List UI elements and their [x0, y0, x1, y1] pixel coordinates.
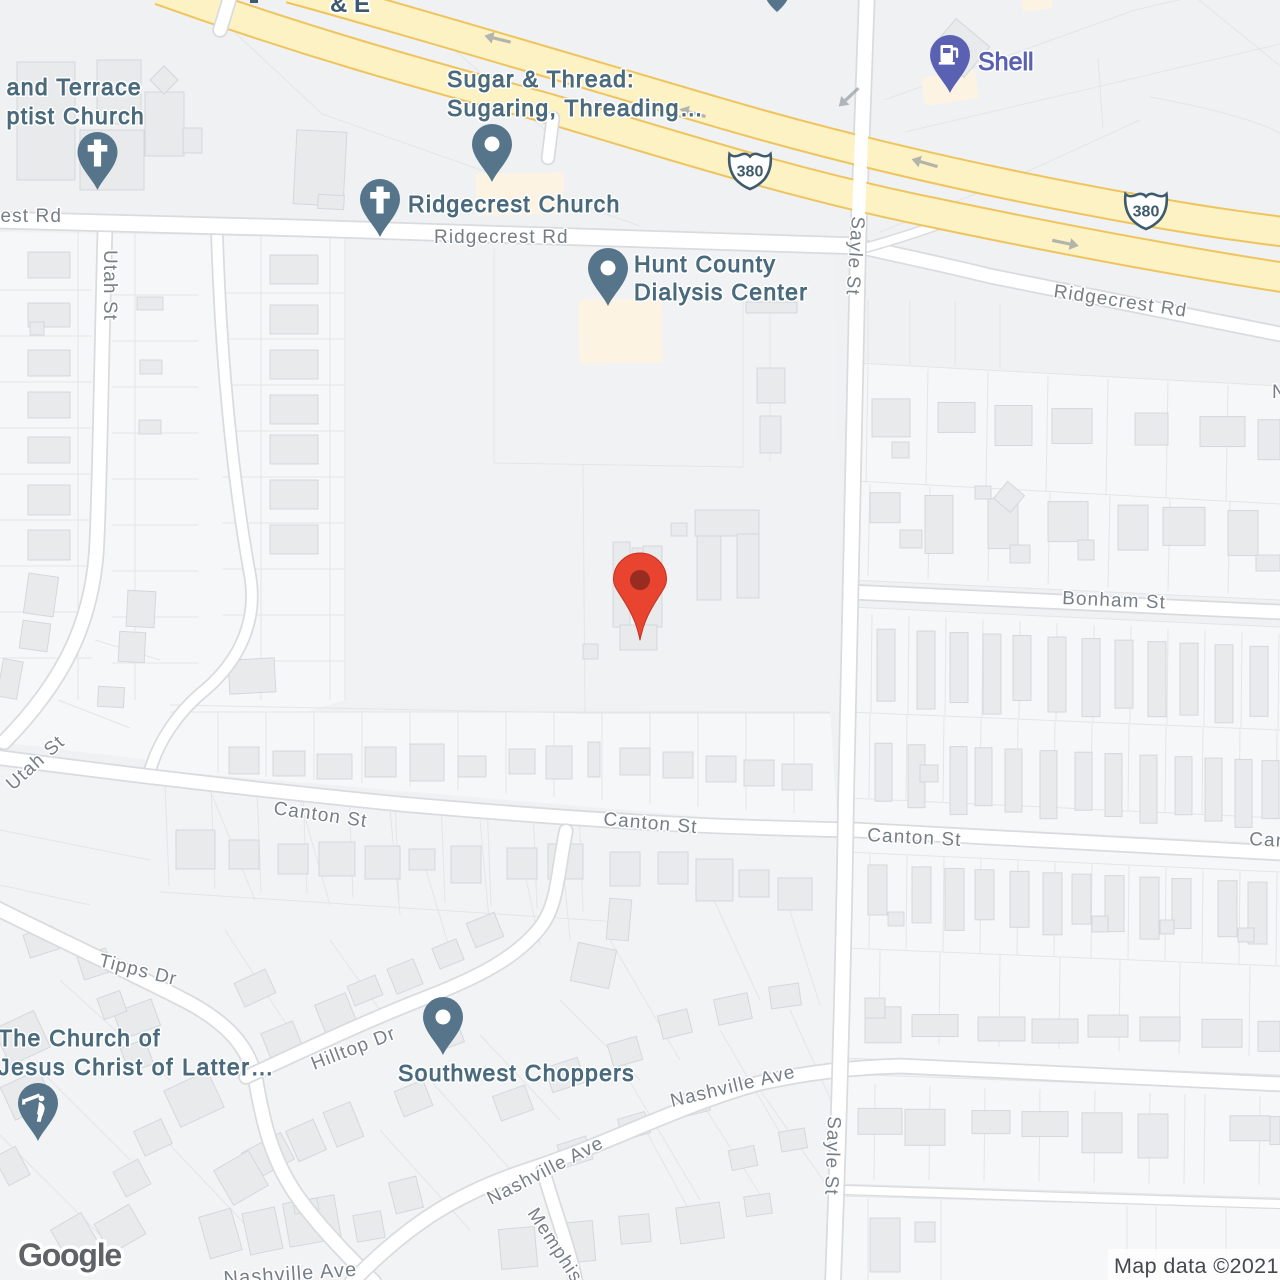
svg-text:Jesus Christ of Latter…: Jesus Christ of Latter…: [0, 1054, 275, 1080]
svg-text:The Church of: The Church of: [0, 1025, 161, 1051]
svg-text:ptist Church: ptist Church: [7, 103, 145, 129]
svg-text:and Terrace: and Terrace: [7, 74, 142, 100]
svg-text:Google: Google: [18, 1237, 121, 1273]
svg-text:& E: & E: [330, 0, 370, 18]
svg-text:380: 380: [737, 164, 764, 181]
svg-text:Dialysis Center: Dialysis Center: [634, 279, 808, 305]
svg-text:crest Rd: crest Rd: [0, 206, 62, 227]
svg-text:Sugaring, Threading…: Sugaring, Threading…: [447, 95, 704, 121]
svg-text:Map data ©2021: Map data ©2021: [1114, 1254, 1279, 1278]
svg-text:Ridgecrest Rd: Ridgecrest Rd: [434, 227, 569, 248]
svg-text:Can: Can: [1249, 829, 1280, 852]
svg-text:Ridgecrest Church: Ridgecrest Church: [408, 191, 621, 217]
svg-text:Shell: Shell: [978, 48, 1034, 76]
svg-text:Sayle St: Sayle St: [820, 1116, 844, 1196]
svg-text:Sugar & Thread:: Sugar & Thread:: [447, 66, 635, 92]
svg-text:Utah St: Utah St: [99, 250, 120, 321]
svg-text:Hunt County: Hunt County: [634, 251, 776, 277]
svg-text:Southwest Choppers: Southwest Choppers: [398, 1060, 635, 1086]
svg-text:N: N: [1272, 382, 1280, 403]
svg-text:380: 380: [1133, 204, 1160, 221]
